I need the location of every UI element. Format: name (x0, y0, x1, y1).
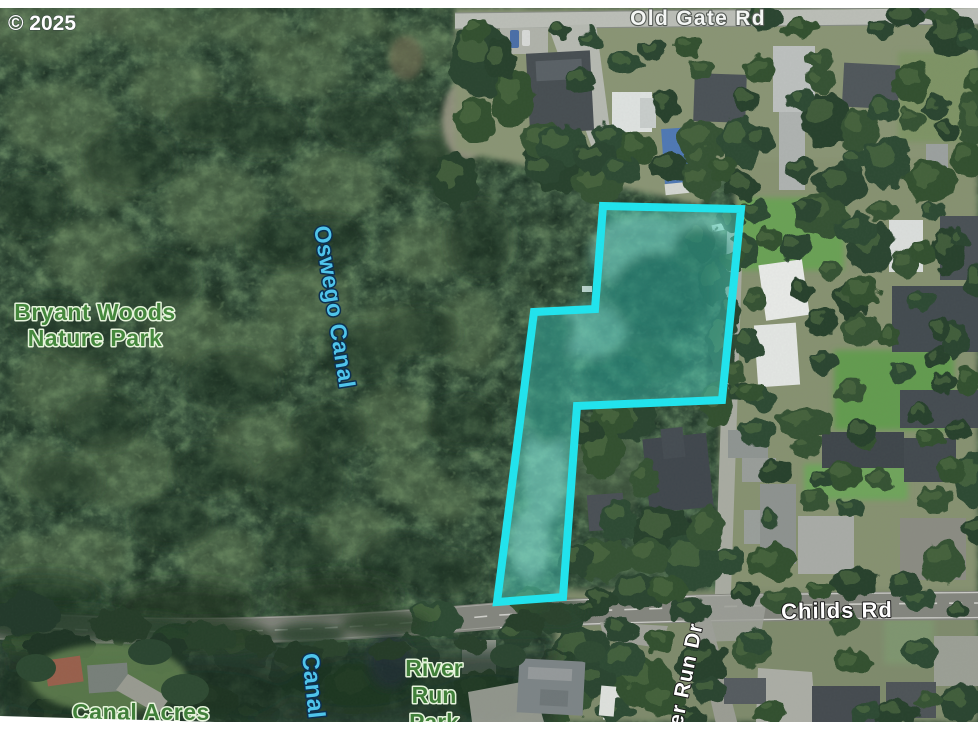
svg-text:Run: Run (412, 682, 457, 708)
svg-text:Bryant Woods: Bryant Woods (14, 299, 175, 325)
svg-text:Nature Park: Nature Park (28, 325, 163, 351)
svg-text:Old Gate Rd: Old Gate Rd (630, 7, 766, 30)
svg-text:River: River (405, 655, 463, 681)
svg-text:© 2025: © 2025 (8, 12, 76, 35)
svg-text:Childs Rd: Childs Rd (781, 597, 893, 624)
